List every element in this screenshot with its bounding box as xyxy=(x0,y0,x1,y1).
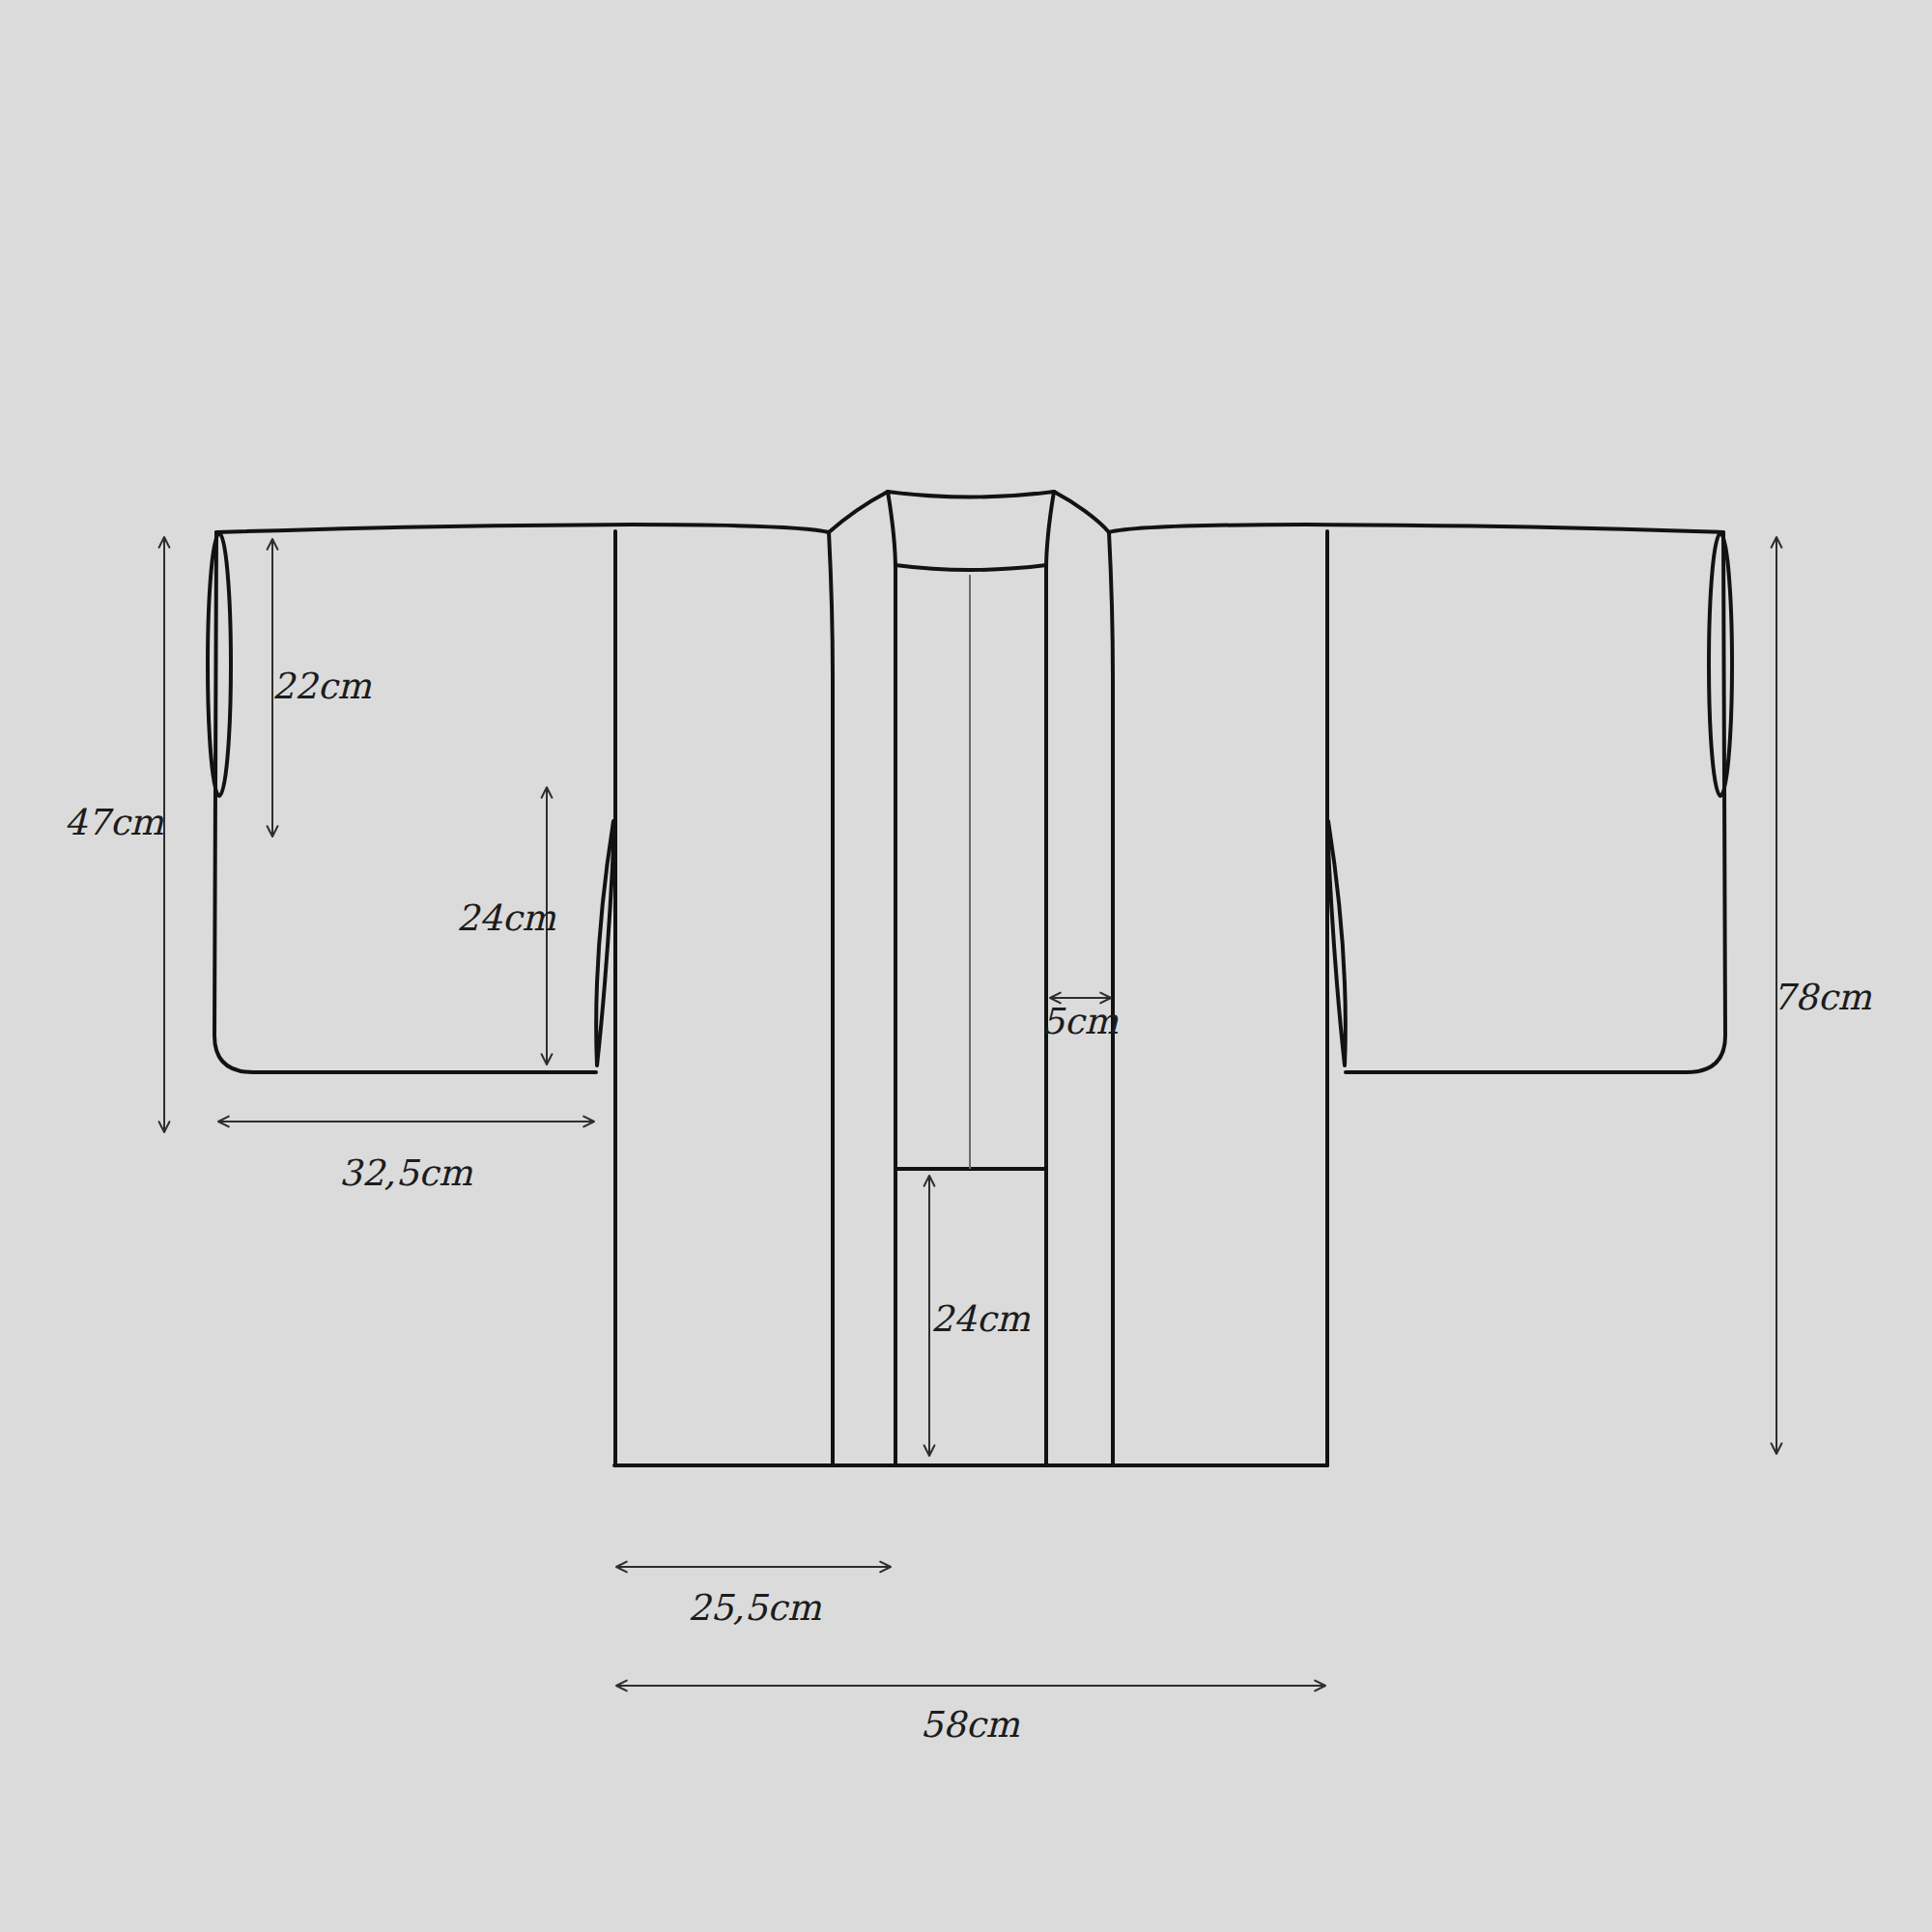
label-sleeve-length: 47cm xyxy=(65,802,165,843)
dimension-labels-group: 47cm 22cm 24cm 32,5cm 5cm 24cm 25,5cm 58… xyxy=(65,666,1873,1746)
label-sleeve-width: 32,5cm xyxy=(339,1152,473,1194)
label-collar-width: 5cm xyxy=(1041,1001,1119,1042)
collar-inner-edge-right xyxy=(1046,492,1054,1465)
kimono-technical-diagram: 47cm 22cm 24cm 32,5cm 5cm 24cm 25,5cm 58… xyxy=(0,0,1932,1932)
right-sleeve-opening-ellipse xyxy=(1709,533,1732,796)
right-underarm-fold xyxy=(1327,821,1346,1065)
collar-shoulder-slope-left xyxy=(829,492,888,532)
collar-inner-edge-left xyxy=(888,492,895,1465)
label-hem-width: 58cm xyxy=(921,1704,1021,1746)
shoulder-top-edge-right xyxy=(1109,525,1723,532)
collar-shoulder-slope-right xyxy=(1054,492,1109,532)
label-sleeve-opening: 22cm xyxy=(272,666,373,707)
left-underarm-fold xyxy=(596,821,614,1065)
label-armhole-depth: 24cm xyxy=(457,897,557,939)
label-back-panel-height: 24cm xyxy=(931,1298,1032,1340)
diagram-canvas: 47cm 22cm 24cm 32,5cm 5cm 24cm 25,5cm 58… xyxy=(0,0,1932,1932)
collar-outer-edge-left xyxy=(829,532,833,1465)
label-body-length: 78cm xyxy=(1773,977,1873,1018)
neckline-curve xyxy=(895,565,1046,570)
right-sleeve-outline xyxy=(1346,532,1725,1072)
label-front-panel-width: 25,5cm xyxy=(688,1587,822,1629)
collar-top-curve xyxy=(888,492,1054,497)
shoulder-top-edge-left xyxy=(216,525,829,532)
left-sleeve-opening-ellipse xyxy=(208,533,231,796)
